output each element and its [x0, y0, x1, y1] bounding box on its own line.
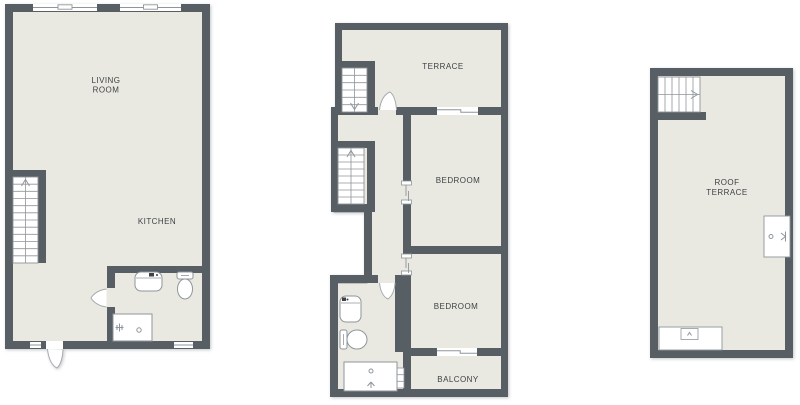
door-jamb — [402, 181, 412, 185]
wall-top — [650, 68, 793, 76]
wall-right — [501, 23, 508, 397]
window — [174, 342, 193, 348]
toilet-bowl — [347, 330, 367, 349]
entry-door-leaf — [48, 349, 64, 368]
wall-stair-right — [38, 170, 46, 263]
sink-faucet-icon — [149, 273, 154, 277]
staircase — [13, 177, 38, 263]
wall-bath-left — [330, 275, 338, 397]
staircase — [658, 77, 700, 112]
wall-hall-bedroom — [403, 107, 411, 352]
door-opening — [403, 256, 411, 273]
window — [33, 4, 97, 11]
window — [30, 342, 41, 348]
window — [437, 107, 478, 115]
wall-left — [650, 68, 658, 358]
wall-terrace-top — [335, 23, 508, 30]
room-label-bedroom-2: BEDROOM — [434, 302, 479, 311]
wall-hall-stair-right — [367, 141, 375, 212]
door-jamb — [402, 200, 412, 204]
sink-faucet-dot — [347, 299, 349, 301]
wall-terrace-stair-right — [367, 61, 375, 115]
room-label-kitchen: KITCHEN — [138, 217, 176, 226]
room-label-living-room: LIVINGROOM — [92, 76, 121, 95]
wall-right — [202, 4, 210, 349]
door-opening — [107, 288, 115, 307]
floor-plan-ground: LIVINGROOMKITCHEN — [5, 4, 210, 368]
room-label-line: ROOF — [715, 178, 740, 187]
wall-bedroom-divider — [403, 246, 508, 254]
room-label-balcony: BALCONY — [437, 375, 479, 384]
wall-right — [785, 68, 793, 358]
room-label-line: TERRACE — [706, 188, 747, 197]
wall-stair-bottom — [658, 112, 706, 120]
room-label-line: LIVING — [92, 76, 121, 85]
wall-bath-horizontal — [107, 266, 210, 273]
wall-left-upper — [331, 107, 338, 212]
planter-inner — [681, 329, 698, 340]
floor-plan-page: LIVINGROOMKITCHENTERRACEBEDROOMBEDROOMBA… — [0, 0, 800, 405]
door-opening — [46, 341, 63, 349]
floorplan-canvas: LIVINGROOMKITCHENTERRACEBEDROOMBEDROOMBA… — [0, 0, 800, 405]
wall-left-mid — [364, 204, 372, 283]
wall-bottom — [650, 350, 793, 358]
door-jamb — [402, 271, 412, 275]
room-label-terrace: TERRACE — [422, 62, 463, 71]
toilet-bowl — [178, 279, 193, 299]
staircase — [338, 148, 364, 204]
room-label-line: ROOM — [93, 86, 120, 95]
floor-plan-first: TERRACEBEDROOMBEDROOMBALCONY — [330, 23, 508, 397]
staircase — [342, 68, 367, 112]
sink-faucet-icon — [342, 298, 346, 302]
door-opening — [378, 275, 395, 283]
door-opening — [403, 183, 411, 202]
floor-plan-roof: ROOFTERRACE — [650, 68, 793, 358]
window — [437, 348, 477, 356]
sink-faucet-dot — [156, 274, 158, 276]
window — [120, 4, 181, 11]
door-jamb — [402, 254, 412, 258]
room-label-bedroom-1: BEDROOM — [436, 176, 481, 185]
